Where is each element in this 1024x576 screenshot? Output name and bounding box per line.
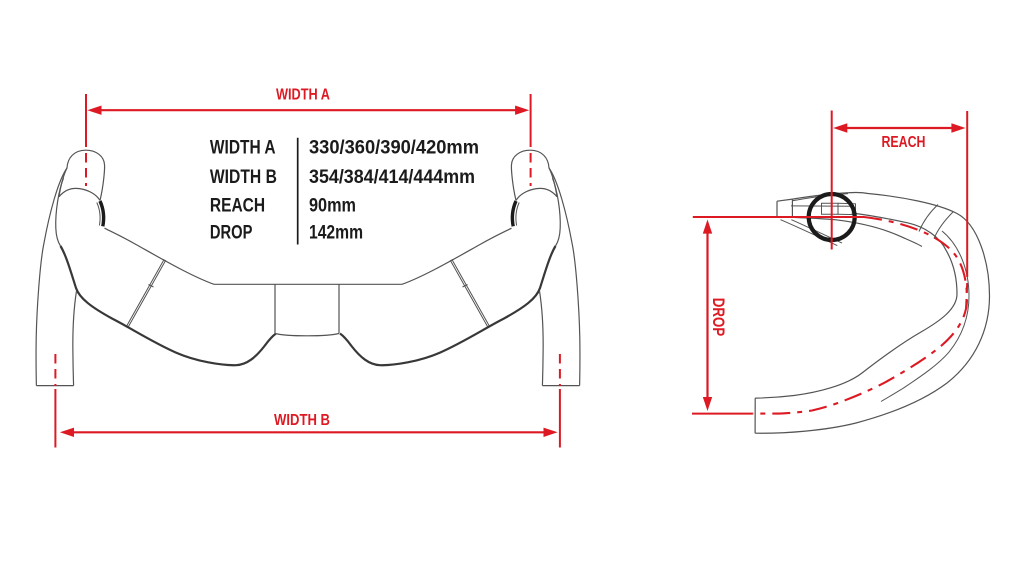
- svg-text:WIDTH B: WIDTH B: [274, 412, 330, 429]
- svg-text:REACH: REACH: [882, 134, 926, 151]
- svg-text:DROP: DROP: [210, 221, 253, 243]
- svg-text:330/360/390/420mm: 330/360/390/420mm: [309, 136, 479, 158]
- svg-text:WIDTH B: WIDTH B: [210, 166, 277, 188]
- svg-text:REACH: REACH: [210, 194, 265, 216]
- svg-text:142mm: 142mm: [309, 221, 363, 243]
- svg-text:DROP: DROP: [709, 298, 727, 337]
- svg-text:354/384/414/444mm: 354/384/414/444mm: [309, 166, 475, 188]
- svg-text:WIDTH A: WIDTH A: [276, 87, 330, 104]
- svg-text:WIDTH A: WIDTH A: [210, 136, 276, 158]
- svg-text:90mm: 90mm: [309, 194, 356, 216]
